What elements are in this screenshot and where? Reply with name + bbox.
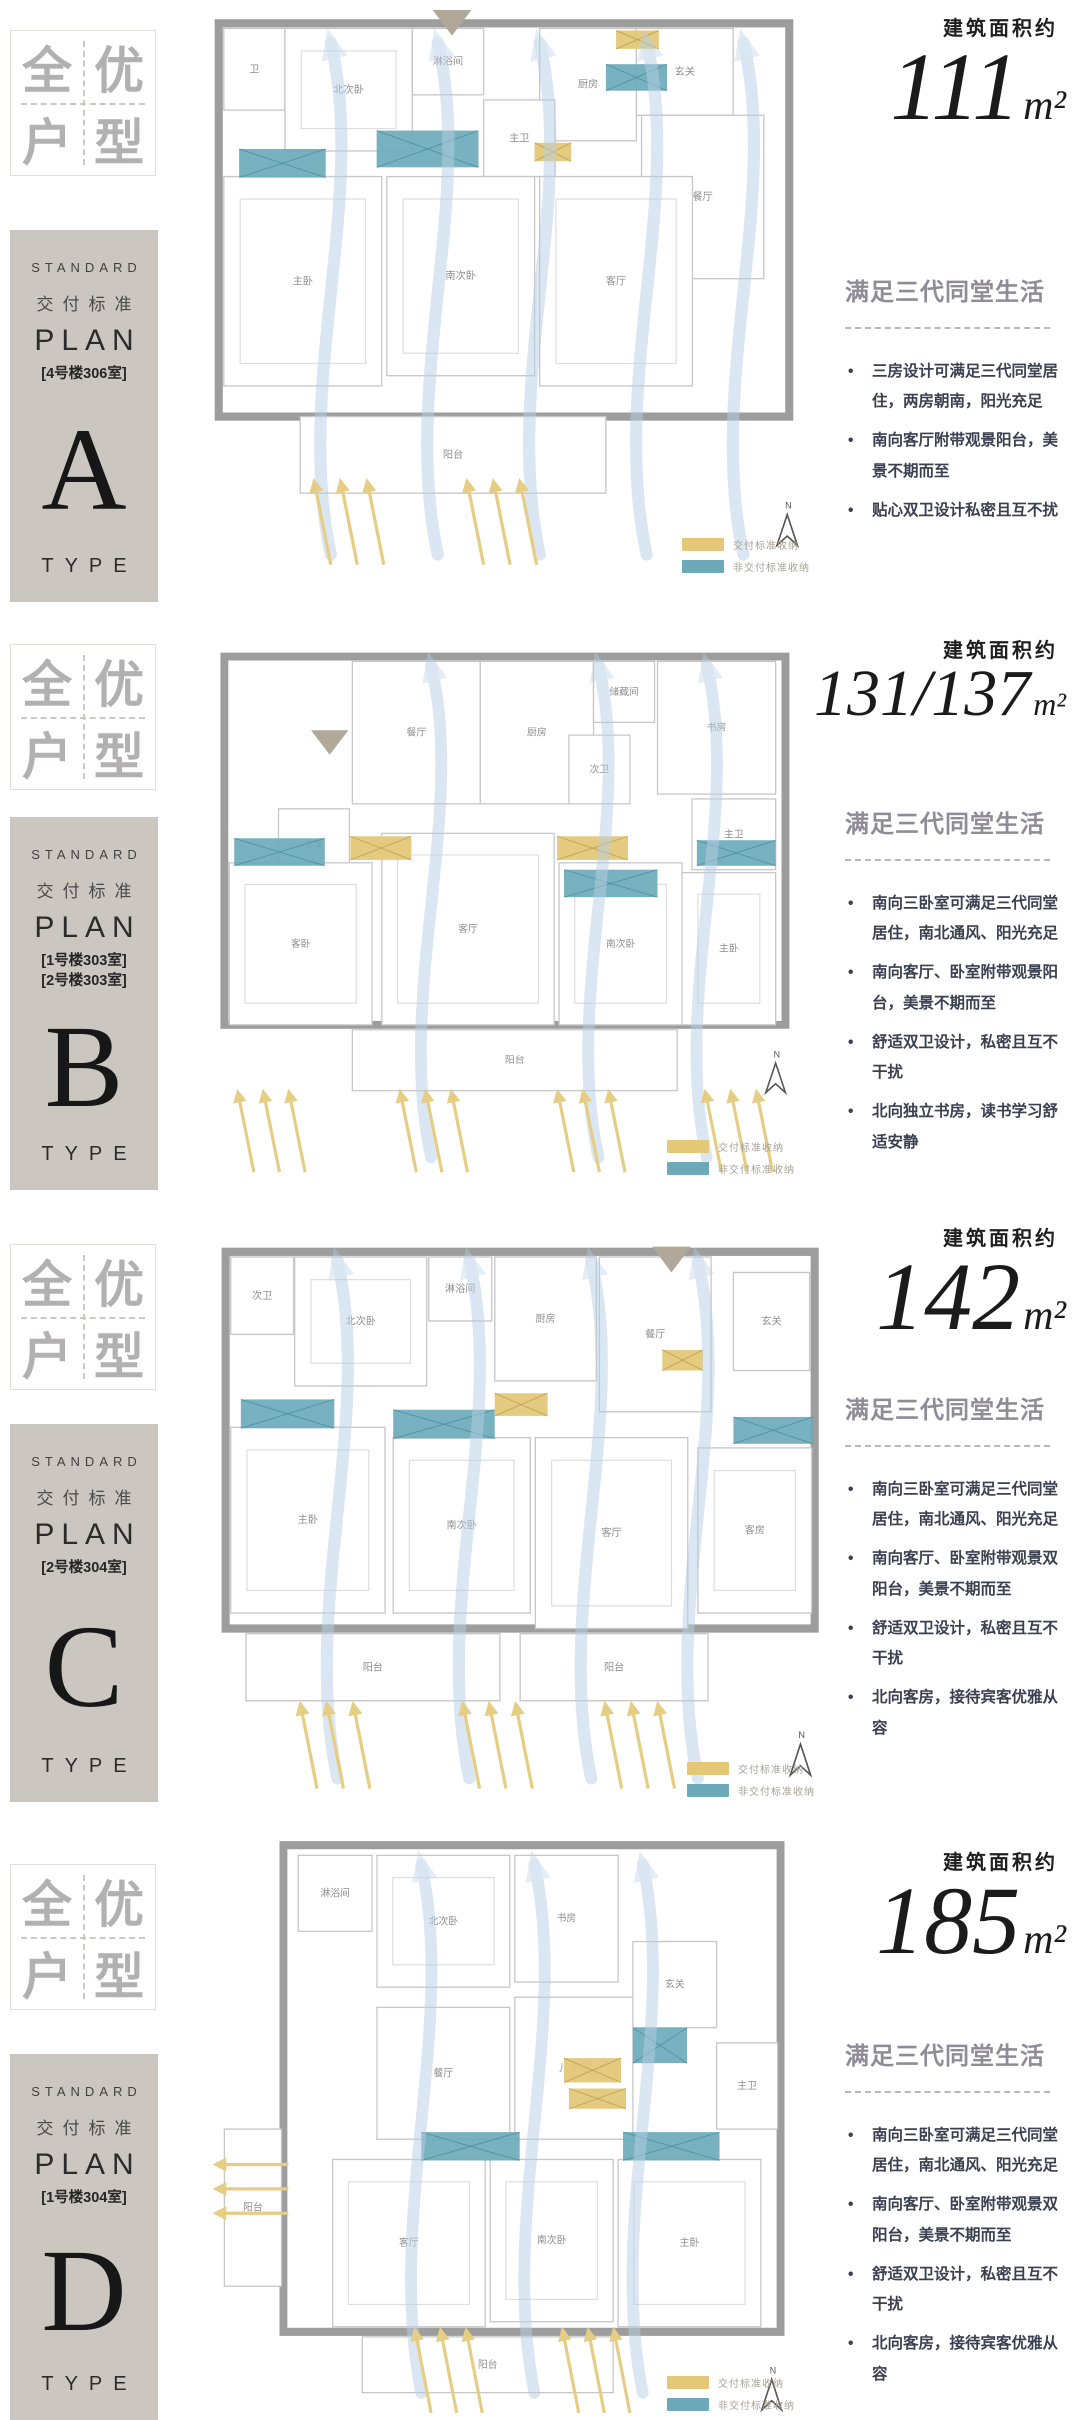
badge-char: 型 bbox=[83, 1937, 155, 2009]
room-tag: [1号楼303室] bbox=[41, 952, 126, 972]
description-heading: 满足三代同堂生活 bbox=[845, 1390, 1067, 1425]
legend-label: 非交付标准收纳 bbox=[718, 2397, 795, 2412]
room-label: 书房 bbox=[557, 1912, 577, 1925]
type-label: TYPE bbox=[41, 1755, 137, 1778]
room-label: 餐厅 bbox=[406, 726, 426, 739]
plan-label: PLAN bbox=[34, 911, 140, 945]
floor-plan-d: 淋浴间北次卧书房玄关主卫餐厅儿童区阳台客厅南次卧主卧阳台N交付标准收纳非交付标准… bbox=[185, 1830, 815, 2418]
plan-legend: 交付标准收纳非交付标准收纳 bbox=[687, 1754, 815, 1798]
type-label: TYPE bbox=[41, 555, 137, 578]
area-value: 185 bbox=[876, 1867, 1020, 1974]
legend-label: 交付标准收纳 bbox=[718, 2375, 784, 2390]
plan-legend: 交付标准收纳非交付标准收纳 bbox=[667, 1132, 795, 1176]
room-tag: [1号楼304室] bbox=[41, 2189, 126, 2209]
room-label: 客卧 bbox=[291, 937, 311, 950]
feature-item: 南向三卧室可满足三代同堂居住，南北通风、阳光充足 bbox=[845, 1475, 1067, 1535]
room-label: 客厅 bbox=[606, 274, 626, 287]
room-label: 厨房 bbox=[535, 1312, 555, 1325]
room-label: 厨房 bbox=[527, 726, 547, 739]
badge-char: 全 bbox=[11, 31, 83, 103]
badge-char: 户 bbox=[11, 103, 83, 175]
room-label: 阳台 bbox=[363, 1660, 383, 1673]
floor-plan-svg: 淋浴间北次卧书房玄关主卫餐厅儿童区阳台客厅南次卧主卧阳台N bbox=[185, 1830, 815, 2418]
badge-char: 户 bbox=[11, 1317, 83, 1389]
plan-legend: 交付标准收纳非交付标准收纳 bbox=[667, 2368, 795, 2412]
room-label: 厨房 bbox=[578, 78, 598, 91]
legend-swatch bbox=[682, 560, 724, 573]
feature-list: 南向三卧室可满足三代同堂居住，南北通风、阳光充足南向客厅、卧室附带观景阳台，美景… bbox=[845, 889, 1067, 1158]
legend-row: 非交付标准收纳 bbox=[687, 1783, 815, 1798]
room-label: 主卧 bbox=[680, 2236, 700, 2249]
quality-badge: 全 优 户 型 bbox=[10, 1244, 156, 1390]
room-label: 主卧 bbox=[298, 1513, 318, 1526]
quality-badge: 全 优 户 型 bbox=[10, 30, 156, 176]
legend-swatch bbox=[667, 1140, 709, 1153]
section-type-d: 全 优 户 型 STANDARD 交付标准 PLAN [1号楼304室] D T… bbox=[0, 1828, 1080, 2420]
badge-char: 优 bbox=[83, 31, 155, 103]
standard-label: STANDARD bbox=[31, 260, 142, 275]
room-label: 南次卧 bbox=[445, 269, 476, 282]
feature-item: 南向三卧室可满足三代同堂居住，南北通风、阳光充足 bbox=[845, 2121, 1067, 2181]
area-block: 建筑面积约 131/137m² bbox=[796, 634, 1066, 726]
room-label: 阳台 bbox=[505, 1053, 525, 1066]
feature-item: 三房设计可满足三代同堂居住，两房朝南，阳光充足 bbox=[845, 357, 1067, 417]
deliver-label: 交付标准 bbox=[37, 1484, 141, 1509]
legend-label: 非交付标准收纳 bbox=[738, 1783, 815, 1798]
svg-text:N: N bbox=[798, 1730, 805, 1740]
section-type-b: 全 优 户 型 STANDARD 交付标准 PLAN [1号楼303室][2号楼… bbox=[0, 612, 1080, 1218]
room-tag: [2号楼304室] bbox=[41, 1559, 126, 1579]
room-label: 主卫 bbox=[724, 828, 744, 840]
area-unit: m² bbox=[1033, 686, 1066, 722]
feature-item: 北向独立书房，读书学习舒适安静 bbox=[845, 1097, 1067, 1157]
description-heading: 满足三代同堂生活 bbox=[845, 2036, 1067, 2071]
floor-plan-b: 餐厅厨房储藏间书房次卫玄关客卧客厅南次卧主卫主卧阳台N交付标准收纳非交付标准收纳 bbox=[185, 632, 815, 1182]
legend-row: 交付标准收纳 bbox=[682, 537, 810, 552]
room-tags: [2号楼304室] bbox=[41, 1559, 126, 1579]
floor-plan-a: 卫北次卧淋浴间厨房玄关餐厅主卫主卧南次卧客厅阳台N交付标准收纳非交付标准收纳 bbox=[178, 8, 830, 580]
badge-char: 全 bbox=[11, 1245, 83, 1317]
badge-char: 优 bbox=[83, 645, 155, 717]
badge-char: 型 bbox=[83, 717, 155, 789]
legend-swatch bbox=[687, 1784, 729, 1797]
type-label: TYPE bbox=[41, 2373, 137, 2396]
area-value: 131/137 bbox=[814, 657, 1030, 730]
feature-item: 南向客厅附带观景阳台，美景不期而至 bbox=[845, 426, 1067, 486]
quality-badge: 全 优 户 型 bbox=[10, 1864, 156, 2010]
legend-row: 交付标准收纳 bbox=[667, 1139, 795, 1154]
badge-char: 优 bbox=[83, 1245, 155, 1317]
dashed-divider bbox=[845, 327, 1050, 329]
room-tags: [4号楼306室] bbox=[41, 365, 126, 385]
room-label: 南次卧 bbox=[606, 937, 636, 950]
standard-label: STANDARD bbox=[31, 2084, 142, 2099]
legend-row: 非交付标准收纳 bbox=[682, 559, 810, 574]
badge-char: 优 bbox=[83, 1865, 155, 1937]
plan-info-block: STANDARD 交付标准 PLAN [1号楼303室][2号楼303室] B … bbox=[10, 817, 158, 1190]
room-label: 客厅 bbox=[458, 922, 478, 935]
legend-label: 非交付标准收纳 bbox=[718, 1161, 795, 1176]
deliver-label: 交付标准 bbox=[37, 877, 141, 902]
room-label: 客房 bbox=[745, 1523, 765, 1536]
plan-label: PLAN bbox=[34, 324, 140, 358]
legend-swatch bbox=[667, 2376, 709, 2389]
feature-item: 贴心双卫设计私密且互不扰 bbox=[845, 496, 1067, 526]
badge-char: 全 bbox=[11, 1865, 83, 1937]
floor-plan-svg: 餐厅厨房储藏间书房次卫玄关客卧客厅南次卧主卫主卧阳台N bbox=[185, 632, 815, 1182]
dashed-divider bbox=[845, 2091, 1050, 2093]
dashed-divider bbox=[845, 1445, 1050, 1447]
area-unit: m² bbox=[1023, 83, 1066, 129]
legend-row: 非交付标准收纳 bbox=[667, 2397, 795, 2412]
legend-label: 交付标准收纳 bbox=[718, 1139, 784, 1154]
section-type-a: 全 优 户 型 STANDARD 交付标准 PLAN [4号楼306室] A T… bbox=[0, 0, 1080, 612]
room-label: 餐厅 bbox=[692, 190, 712, 203]
dashed-divider bbox=[845, 859, 1050, 861]
room-label: 客厅 bbox=[601, 1526, 621, 1539]
floor-plan-c: 次卫北次卧淋浴间厨房餐厅玄关主卧南次卧客厅客房阳台阳台N交付标准收纳非交付标准收… bbox=[185, 1226, 835, 1804]
room-label: 主卧 bbox=[293, 274, 313, 287]
room-label: 淋浴间 bbox=[320, 1886, 350, 1899]
type-letter: A bbox=[41, 385, 126, 555]
legend-label: 交付标准收纳 bbox=[738, 1761, 804, 1776]
floor-plan-svg: 次卫北次卧淋浴间厨房餐厅玄关主卧南次卧客厅客房阳台阳台N bbox=[185, 1226, 835, 1804]
type-letter: B bbox=[45, 991, 124, 1143]
feature-list: 南向三卧室可满足三代同堂居住，南北通风、阳光充足南向客厅、卧室附带观景双阳台，美… bbox=[845, 1475, 1067, 1744]
room-tags: [1号楼303室][2号楼303室] bbox=[41, 952, 126, 991]
description-block: 满足三代同堂生活 南向三卧室可满足三代同堂居住，南北通风、阳光充足南向客厅、卧室… bbox=[845, 2036, 1067, 2399]
feature-item: 南向客厅、卧室附带观景双阳台，美景不期而至 bbox=[845, 1544, 1067, 1604]
svg-text:N: N bbox=[785, 500, 792, 510]
legend-swatch bbox=[667, 2398, 709, 2411]
compass-north-icon: N bbox=[766, 1049, 786, 1092]
area-unit: m² bbox=[1023, 1917, 1066, 1963]
area-value: 142 bbox=[876, 1243, 1020, 1350]
room-label: 卫 bbox=[249, 64, 259, 75]
feature-item: 舒适双卫设计，私密且互不干扰 bbox=[845, 2260, 1067, 2320]
badge-char: 全 bbox=[11, 645, 83, 717]
feature-item: 北向客房，接待宾客优雅从容 bbox=[845, 1683, 1067, 1743]
legend-row: 交付标准收纳 bbox=[667, 2375, 795, 2390]
deliver-label: 交付标准 bbox=[37, 290, 141, 315]
feature-item: 舒适双卫设计，私密且互不干扰 bbox=[845, 1614, 1067, 1674]
feature-list: 南向三卧室可满足三代同堂居住，南北通风、阳光充足南向客厅、卧室附带观景双阳台，美… bbox=[845, 2121, 1067, 2390]
type-letter: C bbox=[45, 1579, 124, 1755]
area-block: 建筑面积约 111m² bbox=[796, 12, 1066, 132]
room-label: 玄关 bbox=[665, 1977, 685, 1990]
legend-row: 非交付标准收纳 bbox=[667, 1161, 795, 1176]
room-tag: [4号楼306室] bbox=[41, 365, 126, 385]
room-label: 储藏间 bbox=[609, 685, 639, 698]
area-unit: m² bbox=[1023, 1293, 1066, 1339]
plan-info-block: STANDARD 交付标准 PLAN [1号楼304室] D TYPE bbox=[10, 2054, 158, 2420]
type-letter: D bbox=[41, 2209, 126, 2373]
room-label: 主卫 bbox=[509, 132, 529, 144]
badge-char: 型 bbox=[83, 103, 155, 175]
room-label: 南次卧 bbox=[537, 2233, 567, 2246]
room-label: 主卫 bbox=[737, 2080, 757, 2092]
room-label: 阳台 bbox=[443, 448, 463, 461]
standard-label: STANDARD bbox=[31, 847, 142, 862]
badge-char: 户 bbox=[11, 1937, 83, 2009]
svg-text:N: N bbox=[774, 1049, 780, 1059]
plan-label: PLAN bbox=[34, 1518, 140, 1552]
legend-label: 非交付标准收纳 bbox=[733, 559, 810, 574]
quality-badge: 全 优 户 型 bbox=[10, 644, 156, 790]
feature-list: 三房设计可满足三代同堂居住，两房朝南，阳光充足南向客厅附带观景阳台，美景不期而至… bbox=[845, 357, 1067, 526]
description-block: 满足三代同堂生活 三房设计可满足三代同堂居住，两房朝南，阳光充足南向客厅附带观景… bbox=[845, 272, 1067, 535]
plan-info-block: STANDARD 交付标准 PLAN [4号楼306室] A TYPE bbox=[10, 230, 158, 602]
legend-swatch bbox=[667, 1162, 709, 1175]
badge-char: 户 bbox=[11, 717, 83, 789]
description-heading: 满足三代同堂生活 bbox=[845, 272, 1067, 307]
room-label: 玄关 bbox=[761, 1314, 781, 1327]
room-label: 主卧 bbox=[719, 942, 739, 955]
deliver-label: 交付标准 bbox=[37, 2114, 141, 2139]
room-label: 阳台 bbox=[604, 1660, 624, 1673]
legend-row: 交付标准收纳 bbox=[687, 1761, 815, 1776]
feature-item: 北向客房，接待宾客优雅从容 bbox=[845, 2329, 1067, 2389]
room-label: 玄关 bbox=[675, 65, 695, 78]
feature-item: 舒适双卫设计，私密且互不干扰 bbox=[845, 1028, 1067, 1088]
area-value: 111 bbox=[890, 33, 1020, 140]
room-label: 餐厅 bbox=[434, 2066, 454, 2079]
legend-label: 交付标准收纳 bbox=[733, 537, 799, 552]
description-heading: 满足三代同堂生活 bbox=[845, 804, 1067, 839]
type-label: TYPE bbox=[41, 1143, 137, 1166]
room-tags: [1号楼304室] bbox=[41, 2189, 126, 2209]
floor-plan-svg: 卫北次卧淋浴间厨房玄关餐厅主卫主卧南次卧客厅阳台N bbox=[178, 8, 830, 580]
feature-item: 南向三卧室可满足三代同堂居住，南北通风、阳光充足 bbox=[845, 889, 1067, 949]
legend-swatch bbox=[687, 1762, 729, 1775]
room-label: 次卫 bbox=[252, 1289, 272, 1302]
description-block: 满足三代同堂生活 南向三卧室可满足三代同堂居住，南北通风、阳光充足南向客厅、卧室… bbox=[845, 804, 1067, 1167]
plan-legend: 交付标准收纳非交付标准收纳 bbox=[682, 530, 810, 574]
badge-char: 型 bbox=[83, 1317, 155, 1389]
area-block: 建筑面积约 142m² bbox=[796, 1222, 1066, 1342]
legend-swatch bbox=[682, 538, 724, 551]
area-block: 建筑面积约 185m² bbox=[796, 1846, 1066, 1966]
feature-item: 南向客厅、卧室附带观景阳台，美景不期而至 bbox=[845, 958, 1067, 1018]
room-label: 餐厅 bbox=[645, 1327, 665, 1340]
room-tag: [2号楼303室] bbox=[41, 972, 126, 992]
plan-info-block: STANDARD 交付标准 PLAN [2号楼304室] C TYPE bbox=[10, 1424, 158, 1802]
standard-label: STANDARD bbox=[31, 1454, 142, 1469]
plan-label: PLAN bbox=[34, 2148, 140, 2182]
feature-item: 南向客厅、卧室附带观景双阳台，美景不期而至 bbox=[845, 2190, 1067, 2250]
description-block: 满足三代同堂生活 南向三卧室可满足三代同堂居住，南北通风、阳光充足南向客厅、卧室… bbox=[845, 1390, 1067, 1753]
section-type-c: 全 优 户 型 STANDARD 交付标准 PLAN [2号楼304室] C T… bbox=[0, 1218, 1080, 1828]
room-label: 阳台 bbox=[478, 2358, 498, 2371]
